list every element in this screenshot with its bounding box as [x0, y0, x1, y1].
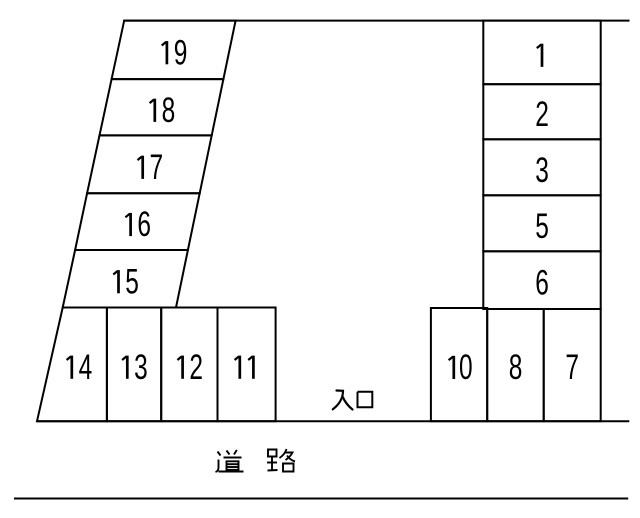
svg-text:7: 7: [565, 349, 579, 387]
svg-text:2: 2: [189, 349, 203, 387]
svg-text:6: 6: [137, 206, 151, 244]
svg-text:3: 3: [535, 152, 549, 190]
svg-text:8: 8: [162, 92, 176, 130]
svg-text:6: 6: [535, 264, 549, 302]
svg-text:4: 4: [79, 349, 93, 387]
svg-text:7: 7: [149, 149, 163, 187]
svg-text:2: 2: [535, 96, 549, 134]
svg-text:9: 9: [174, 34, 188, 72]
svg-text:5: 5: [125, 263, 139, 301]
svg-text:5: 5: [535, 208, 549, 246]
svg-text:0: 0: [459, 349, 473, 387]
svg-text:8: 8: [509, 349, 523, 387]
svg-text:3: 3: [134, 349, 148, 387]
